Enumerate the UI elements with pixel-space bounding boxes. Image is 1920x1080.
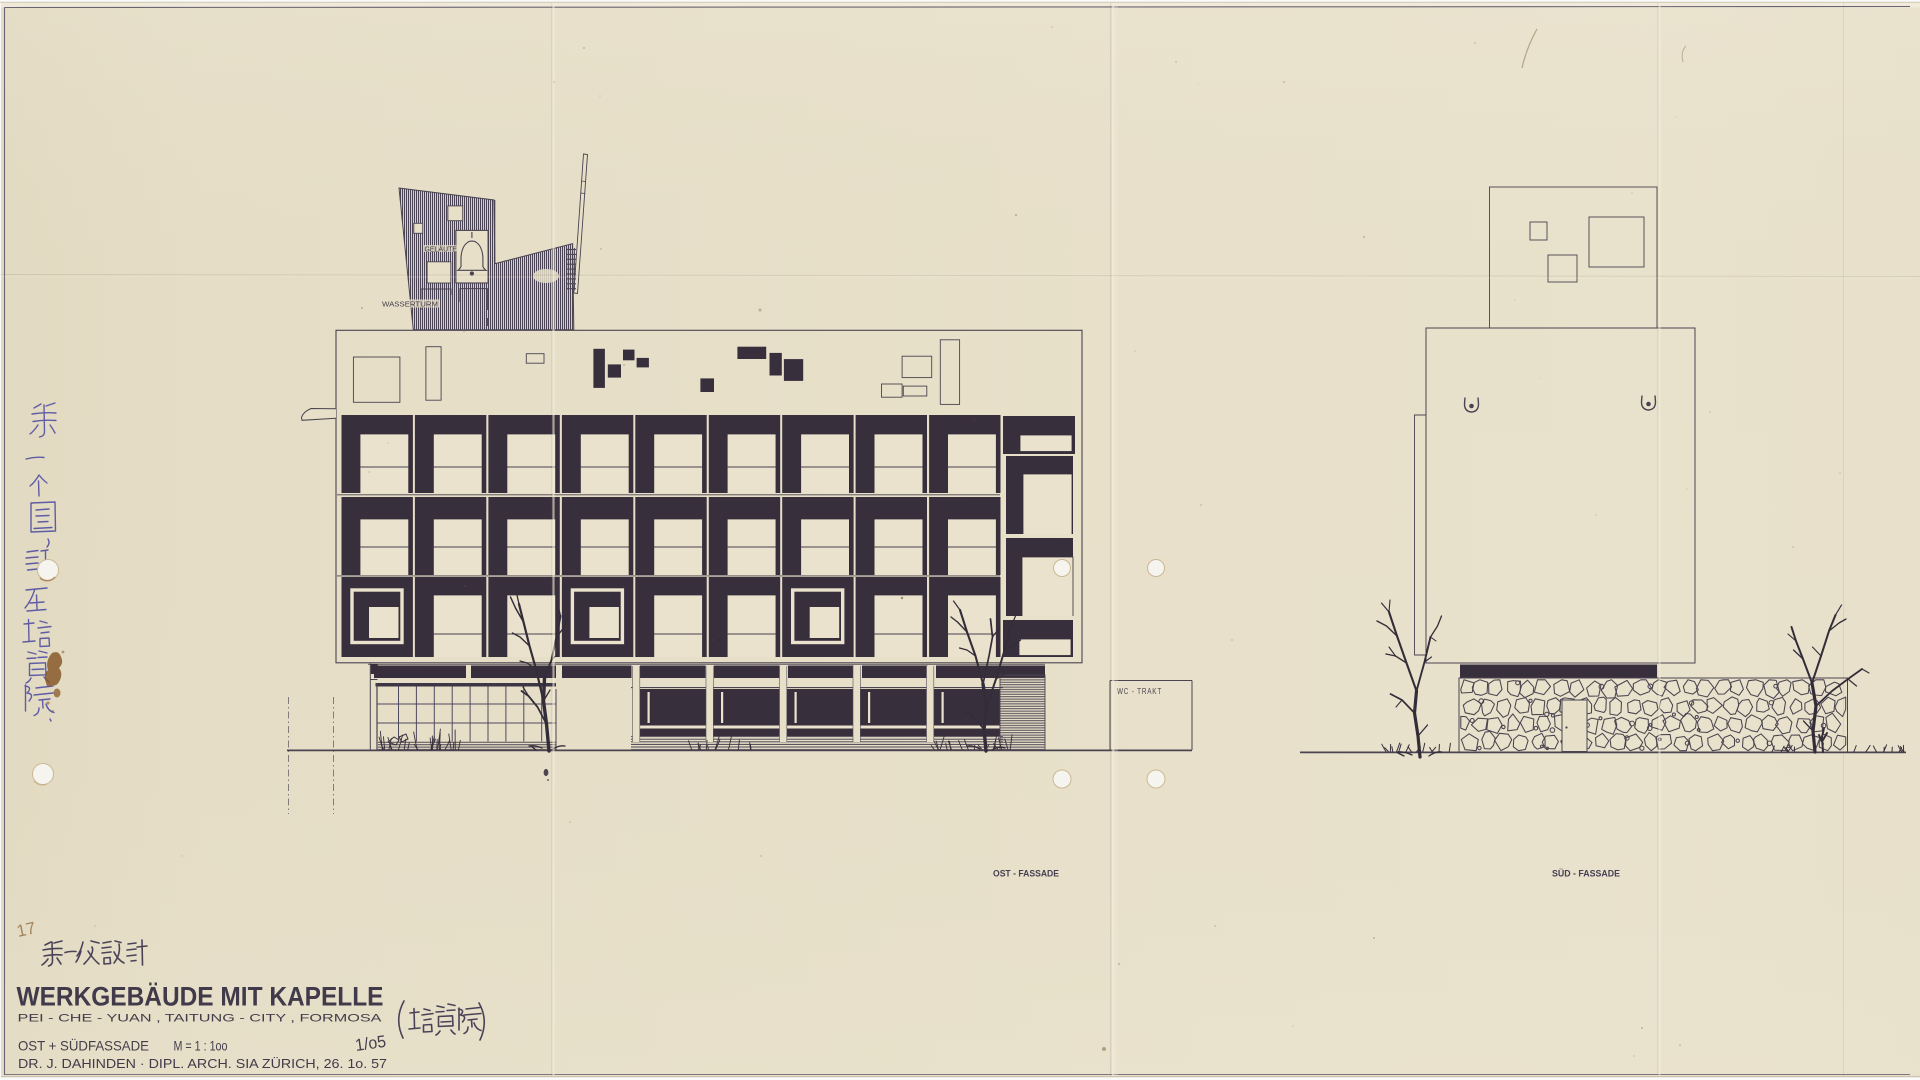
svg-text:M = 1 : 1oo: M = 1 : 1oo	[174, 1037, 228, 1053]
svg-text:GELÄUTE: GELÄUTE	[425, 246, 458, 254]
svg-text:SÜD - FASSADE: SÜD - FASSADE	[1552, 869, 1620, 880]
svg-text:WERKGEBÄUDE MIT KAPELLE: WERKGEBÄUDE MIT KAPELLE	[17, 982, 384, 1012]
svg-text:17: 17	[15, 918, 37, 941]
svg-text:WASSERTURM: WASSERTURM	[382, 302, 438, 309]
svg-text:DR. J. DAHINDEN · DIPL. ARCH.: DR. J. DAHINDEN · DIPL. ARCH. SIA ZÜRICH…	[18, 1056, 387, 1071]
svg-text:WC - TRAKT: WC - TRAKT	[1117, 687, 1162, 696]
svg-text:OST - FASSADE: OST - FASSADE	[993, 869, 1059, 880]
svg-text:PEI - CHE - YUAN , TAITUNG - C: PEI - CHE - YUAN , TAITUNG - CITY , FORM…	[18, 1012, 383, 1024]
svg-text:OST + SÜDFASSADE: OST + SÜDFASSADE	[18, 1036, 149, 1053]
